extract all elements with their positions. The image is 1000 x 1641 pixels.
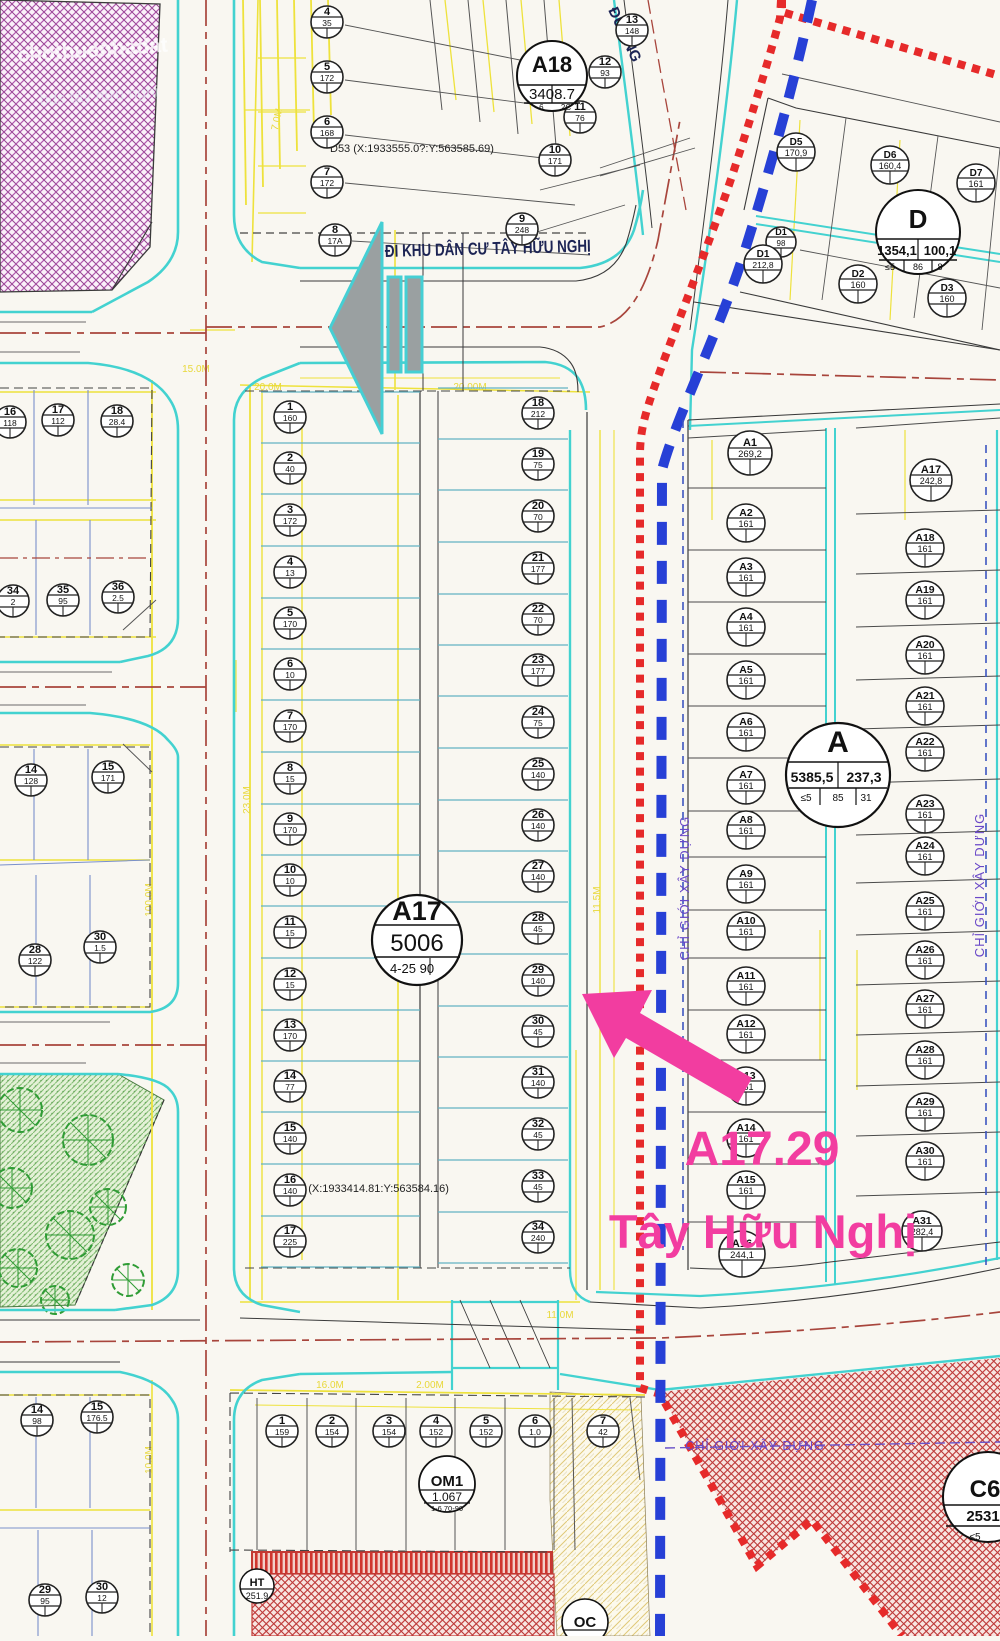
- svg-text:177: 177: [531, 666, 545, 676]
- svg-text:148: 148: [625, 26, 639, 36]
- svg-text:45: 45: [533, 1027, 543, 1037]
- svg-text:6: 6: [287, 658, 293, 670]
- svg-text:161: 161: [738, 927, 753, 937]
- svg-text:2: 2: [11, 597, 16, 607]
- svg-text:152: 152: [479, 1427, 493, 1437]
- svg-text:161: 161: [738, 982, 753, 992]
- svg-text:77: 77: [285, 1082, 295, 1092]
- svg-text:D2: D2: [852, 269, 865, 280]
- svg-text:161: 161: [738, 676, 753, 686]
- svg-text:160: 160: [939, 294, 954, 304]
- svg-text:2C: 2C: [561, 103, 571, 112]
- svg-text:177: 177: [531, 564, 545, 574]
- svg-text:6: 6: [532, 1415, 538, 1427]
- svg-text:2.00M: 2.00M: [416, 1380, 444, 1391]
- svg-text:D5: D5: [790, 137, 803, 148]
- svg-text:159: 159: [275, 1427, 289, 1437]
- svg-text:9: 9: [519, 213, 525, 225]
- svg-text:128: 128: [24, 776, 38, 786]
- svg-text:A: A: [827, 726, 849, 759]
- svg-text:A17: A17: [921, 464, 941, 476]
- svg-text:16: 16: [284, 1174, 296, 1186]
- svg-text:154: 154: [325, 1427, 339, 1437]
- svg-text:8: 8: [332, 224, 338, 236]
- svg-text:8: 8: [287, 762, 293, 774]
- svg-text:31: 31: [860, 793, 872, 804]
- svg-text:9: 9: [287, 813, 293, 825]
- svg-text:13: 13: [626, 14, 638, 26]
- svg-text:32: 32: [532, 1118, 544, 1130]
- svg-text:170: 170: [283, 1031, 297, 1041]
- svg-text:5: 5: [483, 1415, 489, 1427]
- svg-text:21: 21: [532, 552, 544, 564]
- svg-text:34: 34: [532, 1221, 545, 1233]
- svg-text:D3: D3: [941, 283, 954, 294]
- svg-text:140: 140: [531, 770, 545, 780]
- svg-text:161: 161: [738, 880, 753, 890]
- svg-text:140: 140: [531, 872, 545, 882]
- svg-text:A27: A27: [915, 993, 934, 1005]
- svg-text:17: 17: [284, 1225, 296, 1237]
- svg-text:45: 45: [533, 1130, 543, 1140]
- svg-text:23.0M: 23.0M: [242, 786, 253, 814]
- svg-text:18: 18: [532, 397, 544, 409]
- svg-text:2531: 2531: [966, 1508, 999, 1525]
- svg-text:140: 140: [531, 976, 545, 986]
- svg-text:154: 154: [382, 1427, 396, 1437]
- svg-text:4: 4: [433, 1415, 440, 1427]
- svg-text:170,9: 170,9: [785, 148, 808, 158]
- svg-text:A2: A2: [739, 507, 753, 519]
- svg-text:14: 14: [284, 1070, 297, 1082]
- svg-text:≤5: ≤5: [885, 262, 895, 272]
- svg-text:4-25 90: 4-25 90: [390, 961, 434, 976]
- svg-text:15: 15: [285, 774, 295, 784]
- svg-text:170: 170: [283, 619, 297, 629]
- svg-text:A19: A19: [915, 584, 934, 596]
- svg-text:140: 140: [531, 1078, 545, 1088]
- svg-text:29: 29: [532, 964, 544, 976]
- svg-text:16.0M: 16.0M: [316, 1380, 344, 1391]
- svg-text:2.5: 2.5: [112, 593, 124, 603]
- svg-text:269,2: 269,2: [738, 449, 762, 460]
- svg-text:A24: A24: [915, 840, 934, 852]
- svg-text:161: 161: [738, 573, 753, 583]
- svg-text:19: 19: [532, 448, 544, 460]
- svg-text:100,1: 100,1: [924, 243, 957, 258]
- svg-text:15: 15: [285, 980, 295, 990]
- svg-text:4: 4: [324, 6, 331, 18]
- svg-text:A21: A21: [915, 690, 934, 702]
- svg-text:CHỈ GIỚI XÂY DỰNG: CHỈ GIỚI XÂY DỰNG: [685, 1438, 825, 1453]
- svg-text:161: 161: [917, 852, 932, 862]
- svg-text:A8: A8: [739, 814, 753, 826]
- svg-text:248: 248: [515, 225, 529, 235]
- svg-text:27: 27: [532, 860, 544, 872]
- svg-text:86: 86: [913, 262, 923, 272]
- svg-text:D7: D7: [970, 168, 983, 179]
- svg-text:A7: A7: [739, 769, 753, 781]
- svg-text:161: 161: [917, 1056, 932, 1066]
- svg-text:161: 161: [917, 956, 932, 966]
- svg-text:1-6 70-90: 1-6 70-90: [431, 1504, 463, 1513]
- svg-text:70: 70: [533, 512, 543, 522]
- svg-text:Tây Hữu Nghị: Tây Hữu Nghị: [609, 1205, 917, 1258]
- svg-text:D: D: [909, 204, 928, 234]
- svg-text:26: 26: [532, 809, 544, 821]
- svg-text:15: 15: [91, 1401, 103, 1413]
- svg-text:95: 95: [40, 1596, 50, 1606]
- svg-text:161: 161: [917, 544, 932, 554]
- svg-text:172: 172: [320, 73, 334, 83]
- svg-text:≤5: ≤5: [969, 1532, 980, 1543]
- svg-text:70: 70: [533, 615, 543, 625]
- svg-text:18: 18: [111, 405, 123, 417]
- svg-text:2: 2: [329, 1415, 335, 1427]
- svg-text:A6: A6: [739, 716, 753, 728]
- svg-text:161: 161: [738, 1030, 753, 1040]
- svg-text:D1: D1: [757, 249, 770, 260]
- svg-text:35: 35: [322, 18, 332, 28]
- svg-text:11: 11: [284, 916, 296, 928]
- svg-text:25: 25: [532, 758, 544, 770]
- svg-text:75: 75: [533, 718, 543, 728]
- svg-text:161: 161: [917, 651, 932, 661]
- svg-text:45: 45: [533, 1182, 543, 1192]
- svg-text:A26: A26: [915, 944, 934, 956]
- svg-text:A29: A29: [915, 1096, 934, 1108]
- svg-text:D6: D6: [884, 150, 897, 161]
- svg-text:168: 168: [320, 128, 334, 138]
- svg-text:212: 212: [531, 409, 545, 419]
- svg-text:161: 161: [738, 623, 753, 633]
- svg-text:161: 161: [738, 826, 753, 836]
- svg-text:15: 15: [285, 928, 295, 938]
- svg-text:161: 161: [917, 1157, 932, 1167]
- svg-text:161: 161: [917, 702, 932, 712]
- svg-text:A10: A10: [736, 915, 755, 927]
- svg-text:A28: A28: [915, 1044, 934, 1056]
- svg-text:5: 5: [324, 61, 330, 73]
- svg-text:161: 161: [738, 781, 753, 791]
- svg-text:28.4: 28.4: [109, 417, 126, 427]
- svg-text:A17: A17: [392, 896, 442, 926]
- svg-text:251.9: 251.9: [246, 1591, 269, 1601]
- svg-text:A20: A20: [915, 639, 934, 651]
- svg-text:28: 28: [532, 912, 544, 924]
- svg-text:212,8: 212,8: [752, 260, 774, 270]
- svg-text:225: 225: [283, 1237, 297, 1247]
- svg-text:122: 122: [28, 956, 42, 966]
- svg-text:240: 240: [531, 1233, 545, 1243]
- svg-text:24: 24: [532, 706, 545, 718]
- svg-text:2: 2: [287, 452, 293, 464]
- svg-text:3: 3: [287, 504, 293, 516]
- svg-text:40: 40: [285, 464, 295, 474]
- svg-text:140: 140: [531, 821, 545, 831]
- svg-text:34: 34: [7, 585, 20, 597]
- svg-text:7: 7: [600, 1415, 606, 1427]
- svg-text:A4: A4: [739, 611, 753, 623]
- svg-text:1.067: 1.067: [432, 1490, 462, 1504]
- svg-text:23: 23: [532, 654, 544, 666]
- svg-text:≤5: ≤5: [800, 793, 811, 804]
- svg-text:A11: A11: [737, 970, 756, 982]
- svg-text:3408.7: 3408.7: [529, 86, 575, 103]
- svg-text:OC: OC: [574, 1614, 597, 1631]
- svg-text:A30: A30: [915, 1145, 934, 1157]
- svg-text:5006: 5006: [390, 930, 443, 957]
- svg-text:C6: C6: [970, 1476, 1000, 1503]
- svg-text:10: 10: [284, 864, 296, 876]
- svg-text:CHỈ GIỚI XÂY DỰNG: CHỈ GIỚI XÂY DỰNG: [677, 816, 692, 960]
- svg-text:10: 10: [285, 670, 295, 680]
- svg-text:10: 10: [549, 144, 561, 156]
- svg-text:160,4: 160,4: [879, 161, 902, 171]
- svg-text:5385,5: 5385,5: [791, 769, 834, 785]
- svg-text:30: 30: [532, 1015, 544, 1027]
- svg-text:75: 75: [533, 460, 543, 470]
- svg-text:85: 85: [832, 793, 844, 804]
- svg-text:29: 29: [39, 1584, 51, 1596]
- svg-text:A3: A3: [739, 561, 753, 573]
- svg-text:93: 93: [600, 68, 610, 78]
- svg-text:36: 36: [112, 581, 124, 593]
- svg-text:170: 170: [283, 825, 297, 835]
- svg-text:A9: A9: [739, 868, 753, 880]
- svg-text:98: 98: [777, 239, 786, 248]
- svg-text:10: 10: [285, 876, 295, 886]
- svg-text:161: 161: [917, 907, 932, 917]
- svg-text:172: 172: [320, 178, 334, 188]
- svg-text:7: 7: [324, 166, 330, 178]
- svg-text:HT: HT: [250, 1577, 265, 1589]
- svg-text:76: 76: [575, 113, 585, 123]
- svg-text:A22: A22: [915, 736, 934, 748]
- svg-text:A18: A18: [532, 52, 572, 77]
- svg-text:170: 170: [283, 722, 297, 732]
- svg-text:12: 12: [284, 968, 296, 980]
- svg-text:160: 160: [283, 413, 297, 423]
- svg-text:D45 (X:1933414.81:Y:563584.16): D45 (X:1933414.81:Y:563584.16): [285, 1183, 449, 1195]
- svg-text:13: 13: [285, 568, 295, 578]
- svg-text:14: 14: [31, 1404, 44, 1416]
- svg-text:D1: D1: [775, 227, 787, 237]
- svg-text:1.0: 1.0: [529, 1427, 541, 1437]
- svg-text:45: 45: [533, 924, 543, 934]
- svg-text:30: 30: [94, 931, 106, 943]
- svg-text:1.5: 1.5: [94, 943, 106, 953]
- svg-text:31: 31: [532, 1066, 544, 1078]
- svg-text:OM1: OM1: [431, 1473, 464, 1490]
- svg-text:11.0M: 11.0M: [546, 1310, 573, 1321]
- svg-text:12: 12: [599, 56, 611, 68]
- svg-text:172: 172: [283, 516, 297, 526]
- svg-text:A25: A25: [915, 895, 934, 907]
- svg-text:161: 161: [917, 1108, 932, 1118]
- svg-text:12: 12: [97, 1593, 107, 1603]
- svg-text:15: 15: [102, 761, 114, 773]
- svg-text:CHỈ GIỚI XÂY DỰNG: CHỈ GIỚI XÂY DỰNG: [972, 813, 987, 957]
- svg-text:95: 95: [58, 596, 68, 606]
- svg-text:140: 140: [283, 1134, 297, 1144]
- svg-text:A17.29: A17.29: [685, 1123, 840, 1176]
- svg-text:112: 112: [51, 416, 65, 426]
- svg-text:237,3: 237,3: [846, 769, 881, 785]
- svg-text:14: 14: [25, 764, 38, 776]
- svg-text:161: 161: [738, 519, 753, 529]
- svg-text:98: 98: [32, 1416, 42, 1426]
- svg-text:242,8: 242,8: [920, 476, 943, 486]
- svg-text:15: 15: [284, 1122, 296, 1134]
- svg-text:176.5: 176.5: [86, 1413, 108, 1423]
- svg-text:A1: A1: [743, 437, 757, 449]
- svg-text:171: 171: [101, 773, 115, 783]
- svg-text:1: 1: [279, 1415, 285, 1427]
- svg-text:8: 8: [937, 262, 942, 272]
- svg-text:-6: -6: [536, 103, 544, 112]
- svg-text:22: 22: [532, 603, 544, 615]
- svg-text:160: 160: [850, 280, 865, 290]
- svg-text:118: 118: [3, 418, 17, 428]
- svg-text:152: 152: [429, 1427, 443, 1437]
- svg-text:A18: A18: [915, 532, 934, 544]
- svg-text:140: 140: [283, 1186, 297, 1196]
- svg-text:16: 16: [4, 406, 16, 418]
- svg-text:D53 (X:1933555.0?:Y:563585.69): D53 (X:1933555.0?:Y:563585.69): [330, 143, 494, 155]
- svg-text:161: 161: [917, 810, 932, 820]
- svg-text:161: 161: [738, 1186, 753, 1196]
- svg-text:4: 4: [287, 556, 294, 568]
- svg-text:28: 28: [29, 944, 41, 956]
- svg-text:A5: A5: [739, 664, 753, 676]
- svg-text:17: 17: [52, 404, 64, 416]
- svg-text:11.5M: 11.5M: [592, 886, 603, 913]
- svg-text:161: 161: [738, 728, 753, 738]
- svg-text:161: 161: [968, 179, 983, 189]
- svg-text:3: 3: [386, 1415, 392, 1427]
- svg-text:20: 20: [532, 500, 544, 512]
- svg-text:171: 171: [548, 156, 562, 166]
- svg-text:42: 42: [598, 1427, 608, 1437]
- svg-text:6: 6: [324, 116, 330, 128]
- svg-text:161: 161: [917, 1005, 932, 1015]
- svg-text:35: 35: [57, 584, 69, 596]
- svg-text:13: 13: [284, 1019, 296, 1031]
- svg-text:17A: 17A: [327, 236, 342, 246]
- svg-text:A12: A12: [736, 1018, 755, 1030]
- svg-text:1: 1: [287, 401, 293, 413]
- svg-text:33: 33: [532, 1170, 544, 1182]
- svg-text:1354,1: 1354,1: [877, 243, 917, 258]
- svg-text:7: 7: [287, 710, 293, 722]
- svg-text:5: 5: [287, 607, 293, 619]
- svg-text:161: 161: [917, 596, 932, 606]
- svg-text:30: 30: [96, 1581, 108, 1593]
- svg-text:161: 161: [917, 748, 932, 758]
- svg-text:A23: A23: [915, 798, 934, 810]
